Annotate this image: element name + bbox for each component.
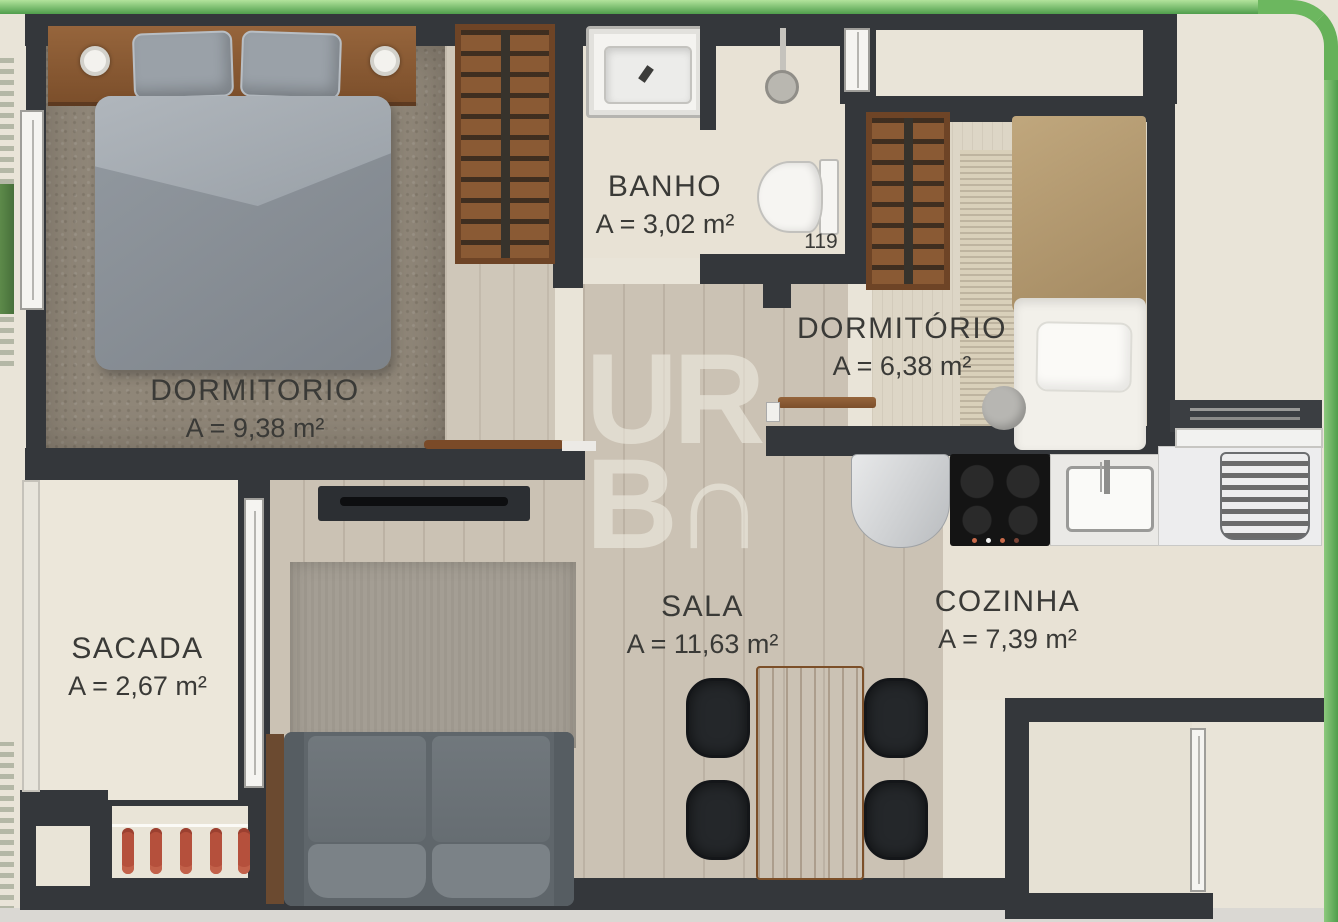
room-area: A = 7,39 m² xyxy=(915,624,1100,655)
kitchen-sink xyxy=(1066,466,1154,532)
floor-plan: UR B∩ xyxy=(0,0,1338,922)
grass xyxy=(0,56,14,184)
sliding-door xyxy=(244,498,264,788)
room-name: SALA xyxy=(610,590,795,624)
flower xyxy=(122,828,134,874)
flower xyxy=(238,828,250,874)
sofa xyxy=(284,732,574,906)
wall xyxy=(553,14,583,288)
balcony-railing xyxy=(22,480,40,792)
sofa-arm xyxy=(554,732,574,906)
flower xyxy=(180,828,192,874)
room-name: BANHO xyxy=(580,170,750,204)
single-bed-duvet xyxy=(1012,116,1146,316)
dining-chair xyxy=(686,678,750,758)
bedroom2-door-leaf xyxy=(778,397,876,408)
balcony-niche xyxy=(36,826,90,886)
area-rug xyxy=(290,562,576,748)
shelf-sticks xyxy=(424,440,564,449)
grass xyxy=(0,184,14,314)
room-label-dormitorio-1: DORMITORIO A = 9,38 m² xyxy=(110,374,400,444)
green-border-corner xyxy=(1258,0,1338,80)
window xyxy=(844,28,870,92)
flower xyxy=(150,828,162,874)
unit-number: 119 xyxy=(798,230,844,254)
room-name: SACADA xyxy=(45,632,230,666)
wall xyxy=(1005,893,1213,919)
room-label-dormitorio-2: DORMITÓRIO A = 6,38 m² xyxy=(772,312,1032,382)
room-label-sala: SALA A = 11,63 m² xyxy=(610,590,795,660)
room-label-sacada: SACADA A = 2,67 m² xyxy=(45,632,230,702)
toilet-bowl xyxy=(757,161,823,233)
wardrobe xyxy=(866,112,950,290)
planter-rail xyxy=(112,824,248,827)
room-area: A = 2,67 m² xyxy=(45,671,230,702)
green-border-top xyxy=(0,0,1272,14)
cooktop-indicator-dots xyxy=(986,538,991,543)
wardrobe xyxy=(455,24,555,264)
room-name: DORMITÓRIO xyxy=(772,312,1032,346)
planter xyxy=(104,800,256,884)
wall xyxy=(1143,14,1177,104)
room-area: A = 11,63 m² xyxy=(610,629,795,660)
room-area: A = 9,38 m² xyxy=(110,413,400,444)
shelf-end xyxy=(562,441,596,451)
dining-chair xyxy=(686,780,750,860)
urbn-watermark: UR B∩ xyxy=(568,348,778,558)
nightstand-sconce-icon xyxy=(80,46,110,76)
door-frame xyxy=(766,402,780,422)
room-label-cozinha: COZINHA A = 7,39 m² xyxy=(915,585,1100,655)
green-border-right xyxy=(1324,66,1338,922)
room-area: A = 3,02 m² xyxy=(580,209,750,240)
grill-utensils-icon xyxy=(1190,408,1300,411)
wall xyxy=(25,448,585,480)
room-name: COZINHA xyxy=(915,585,1100,619)
room-area: A = 6,38 m² xyxy=(772,351,1032,382)
shower-partition xyxy=(700,20,716,130)
pouf xyxy=(982,386,1026,430)
grass xyxy=(0,314,14,366)
grill xyxy=(1220,452,1310,540)
pillow xyxy=(132,30,234,99)
flower xyxy=(210,828,222,874)
wall xyxy=(763,284,791,308)
window xyxy=(1190,728,1206,892)
service-area-floor xyxy=(1029,722,1192,893)
grass xyxy=(0,742,14,922)
shower-head-icon xyxy=(765,70,799,104)
counter-shelf xyxy=(1175,428,1323,448)
cooktop xyxy=(950,454,1050,546)
room-label-banho: BANHO A = 3,02 m² xyxy=(580,170,750,240)
tv xyxy=(340,497,508,506)
dining-chair xyxy=(864,780,928,860)
washing-machine xyxy=(851,454,950,548)
room-name: DORMITORIO xyxy=(110,374,400,408)
pillow xyxy=(240,30,342,99)
pillow xyxy=(1035,321,1132,393)
wall xyxy=(1005,698,1029,916)
kitchen-faucet-icon xyxy=(1104,460,1110,494)
sofa-back-cushion xyxy=(308,736,426,842)
sofa-seat-cushion xyxy=(308,844,426,898)
watermark-line2: B∩ xyxy=(568,453,778,558)
wall xyxy=(1005,698,1335,722)
window xyxy=(20,110,44,310)
sofa-side-wood xyxy=(266,734,284,904)
dining-table xyxy=(756,666,864,880)
sofa-back-cushion xyxy=(432,736,550,842)
nightstand-sconce-icon xyxy=(370,46,400,76)
wall xyxy=(873,14,1175,30)
sofa-arm xyxy=(284,732,304,906)
sofa-seat-cushion xyxy=(432,844,550,898)
wall xyxy=(700,254,878,284)
dining-chair xyxy=(864,678,928,758)
